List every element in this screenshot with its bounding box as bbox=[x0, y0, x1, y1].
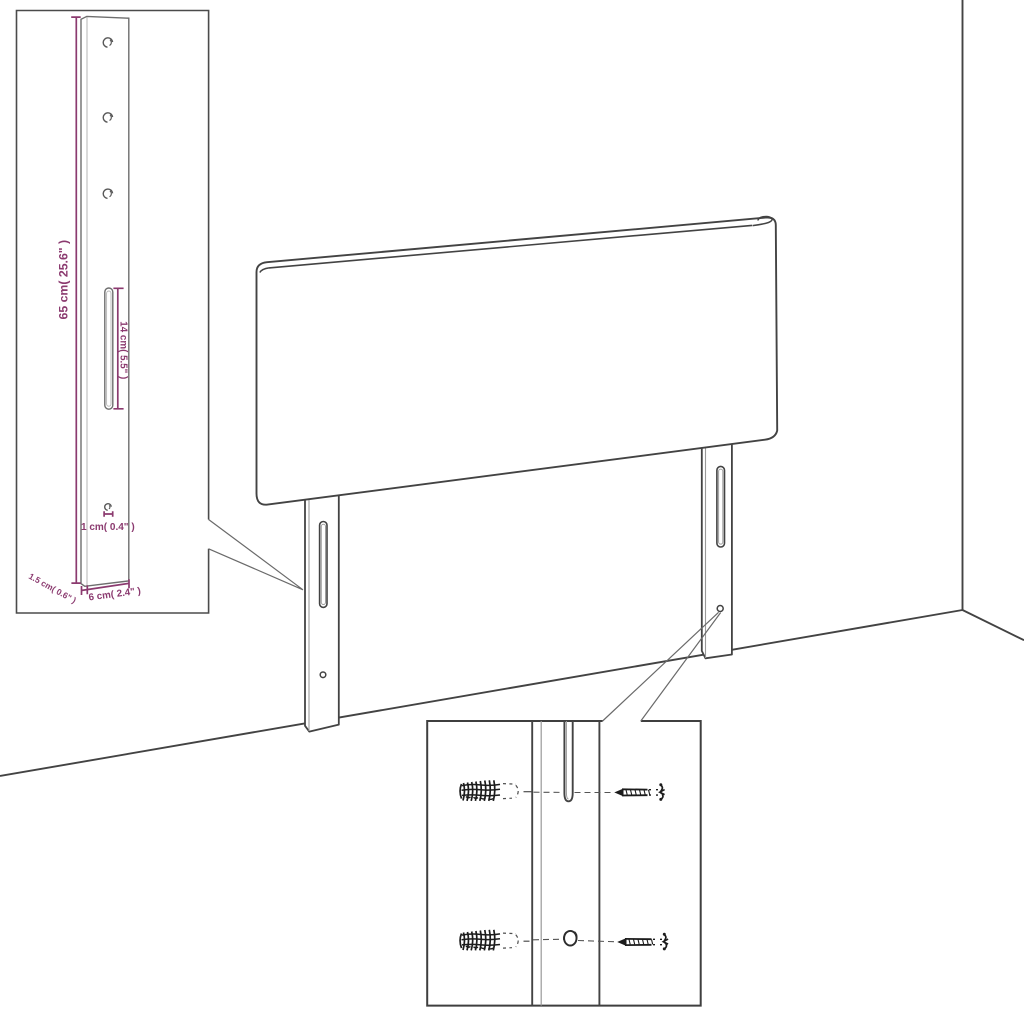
svg-text:1 cm( 0.4" ): 1 cm( 0.4" ) bbox=[81, 522, 135, 533]
svg-text:65 cm( 25.6" ): 65 cm( 25.6" ) bbox=[57, 240, 71, 320]
svg-text:14 cm( 5.5" ): 14 cm( 5.5" ) bbox=[117, 321, 128, 379]
